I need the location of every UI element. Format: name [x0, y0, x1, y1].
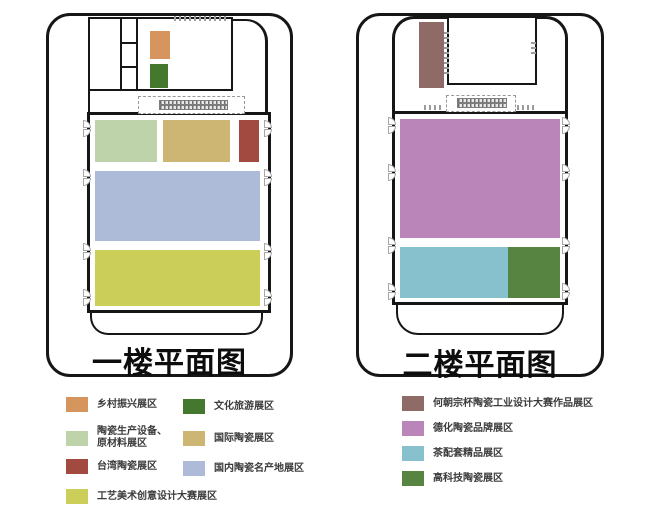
legend-item-domestic: 国内陶瓷名产地展区 — [183, 461, 304, 476]
door-icon — [562, 283, 571, 300]
floor2-entrance-lobby — [396, 305, 564, 335]
legend-swatch — [66, 459, 88, 474]
door-strip-icon — [174, 16, 228, 21]
door-icon — [264, 243, 273, 260]
door-icon — [83, 289, 92, 306]
legend-swatch — [183, 431, 205, 446]
legend-swatch — [402, 421, 424, 436]
legend-swatch — [66, 431, 88, 446]
floor1-entrance-lobby — [90, 313, 263, 335]
door-strip-icon — [444, 32, 449, 74]
zone-tea — [400, 247, 508, 298]
legend-swatch — [402, 471, 424, 486]
door-icon — [388, 164, 397, 181]
door-icon — [562, 117, 571, 134]
legend-item-rural: 乡村振兴展区 — [66, 397, 157, 412]
legend-item-hechaozong: 何朝宗杯陶瓷工业设计大赛作品展区 — [402, 396, 593, 411]
legend-swatch — [402, 396, 424, 411]
zone-rural — [150, 31, 170, 59]
zone-production — [95, 120, 157, 162]
escalator-icon — [138, 96, 245, 114]
zone-dehua — [400, 119, 560, 238]
legend-label: 茶配套精品展区 — [433, 448, 503, 460]
legend-item-production: 陶瓷生产设备、 原材料展区 — [66, 426, 167, 450]
legend-label: 国际陶瓷展区 — [214, 433, 274, 445]
legend-label: 乡村振兴展区 — [97, 399, 157, 411]
legend-item-hightech: 高科技陶瓷展区 — [402, 471, 503, 486]
zone-craft — [95, 250, 260, 306]
legend-swatch — [66, 397, 88, 412]
zone-culture — [150, 64, 168, 88]
door-icon — [83, 169, 92, 186]
floor1-left-wall-segment — [88, 91, 90, 112]
floor2-top-room — [447, 16, 537, 85]
zone-taiwan — [239, 120, 259, 162]
legend-label: 文化旅游展区 — [214, 401, 274, 413]
floor2-title: 二楼平面图 — [356, 340, 604, 384]
zone-hechaozong — [419, 22, 444, 88]
legend-item-dehua: 德化陶瓷品牌展区 — [402, 421, 513, 436]
legend-swatch — [183, 461, 205, 476]
door-strip-icon — [424, 105, 444, 110]
stairs-icon — [120, 17, 138, 91]
escalator-icon — [446, 95, 516, 112]
legend-label: 高科技陶瓷展区 — [433, 473, 503, 485]
legend-item-craft: 工艺美术创意设计大赛展区 — [66, 489, 217, 504]
legend-item-culture: 文化旅游展区 — [183, 399, 274, 414]
zone-hightech — [508, 247, 560, 298]
legend-item-international: 国际陶瓷展区 — [183, 431, 274, 446]
legend-swatch — [66, 489, 88, 504]
door-icon — [562, 164, 571, 181]
legend-swatch — [183, 399, 205, 414]
door-icon — [83, 120, 92, 137]
legend-label: 何朝宗杯陶瓷工业设计大赛作品展区 — [433, 398, 593, 410]
zone-international — [163, 120, 230, 162]
legend-label: 国内陶瓷名产地展区 — [214, 463, 304, 475]
door-icon — [83, 243, 92, 260]
legend-swatch — [402, 446, 424, 461]
floor1-title: 一楼平面图 — [46, 338, 293, 382]
door-icon — [264, 289, 273, 306]
door-icon — [562, 237, 571, 254]
legend-label: 德化陶瓷品牌展区 — [433, 423, 513, 435]
door-strip-icon — [517, 105, 537, 110]
zone-domestic — [95, 171, 260, 241]
legend-item-tea: 茶配套精品展区 — [402, 446, 503, 461]
legend-label: 工艺美术创意设计大赛展区 — [97, 491, 217, 503]
legend-label: 台湾陶瓷展区 — [97, 461, 157, 473]
door-icon — [388, 117, 397, 134]
door-icon — [264, 120, 273, 137]
door-strip-icon — [531, 42, 536, 54]
legend-item-taiwan: 台湾陶瓷展区 — [66, 459, 157, 474]
floor-plan-figure: 一楼平面图 二楼平面图 乡村振兴展区 陶瓷生产设备、 原材料展区 台湾陶瓷展区 — [0, 0, 650, 517]
door-icon — [388, 283, 397, 300]
legend-label: 陶瓷生产设备、 原材料展区 — [97, 426, 167, 450]
door-icon — [264, 169, 273, 186]
door-icon — [388, 237, 397, 254]
